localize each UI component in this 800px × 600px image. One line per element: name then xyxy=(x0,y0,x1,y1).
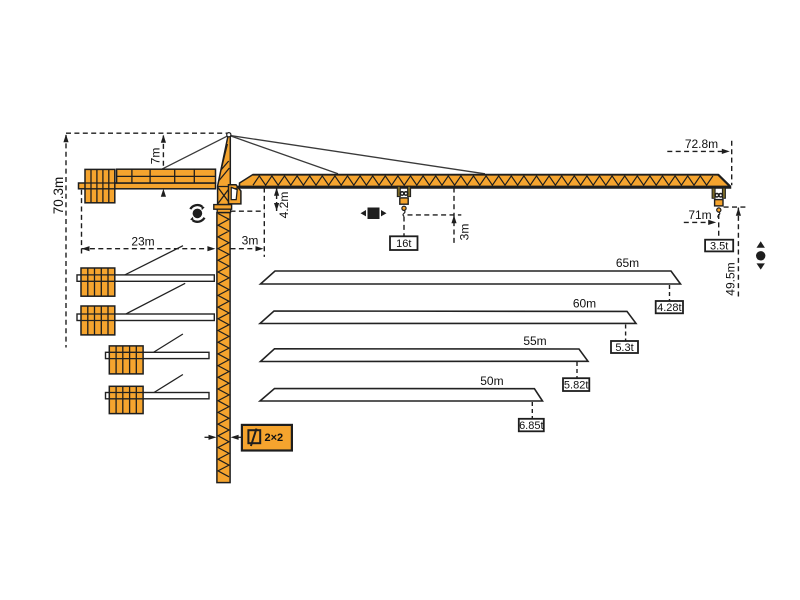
svg-text:5.82t: 5.82t xyxy=(564,380,588,392)
svg-text:3m: 3m xyxy=(242,234,259,248)
svg-text:3.5t: 3.5t xyxy=(710,241,728,253)
svg-text:49.5m: 49.5m xyxy=(724,262,738,295)
svg-text:16t: 16t xyxy=(396,238,411,250)
svg-text:2×2: 2×2 xyxy=(265,432,284,444)
svg-text:60m: 60m xyxy=(573,297,596,311)
svg-text:4.28t: 4.28t xyxy=(657,302,681,314)
svg-text:70.3m: 70.3m xyxy=(51,177,66,215)
svg-text:50m: 50m xyxy=(480,374,503,388)
svg-text:71m: 71m xyxy=(688,208,711,222)
svg-text:65m: 65m xyxy=(616,256,639,270)
svg-text:4.2m: 4.2m xyxy=(277,192,291,219)
svg-text:55m: 55m xyxy=(523,334,546,348)
svg-text:3m: 3m xyxy=(458,224,472,241)
svg-text:7m: 7m xyxy=(148,148,162,165)
svg-text:72.8m: 72.8m xyxy=(685,137,718,151)
svg-text:6.85t: 6.85t xyxy=(519,420,543,432)
svg-text:5.3t: 5.3t xyxy=(615,342,633,354)
svg-text:23m: 23m xyxy=(131,235,154,249)
